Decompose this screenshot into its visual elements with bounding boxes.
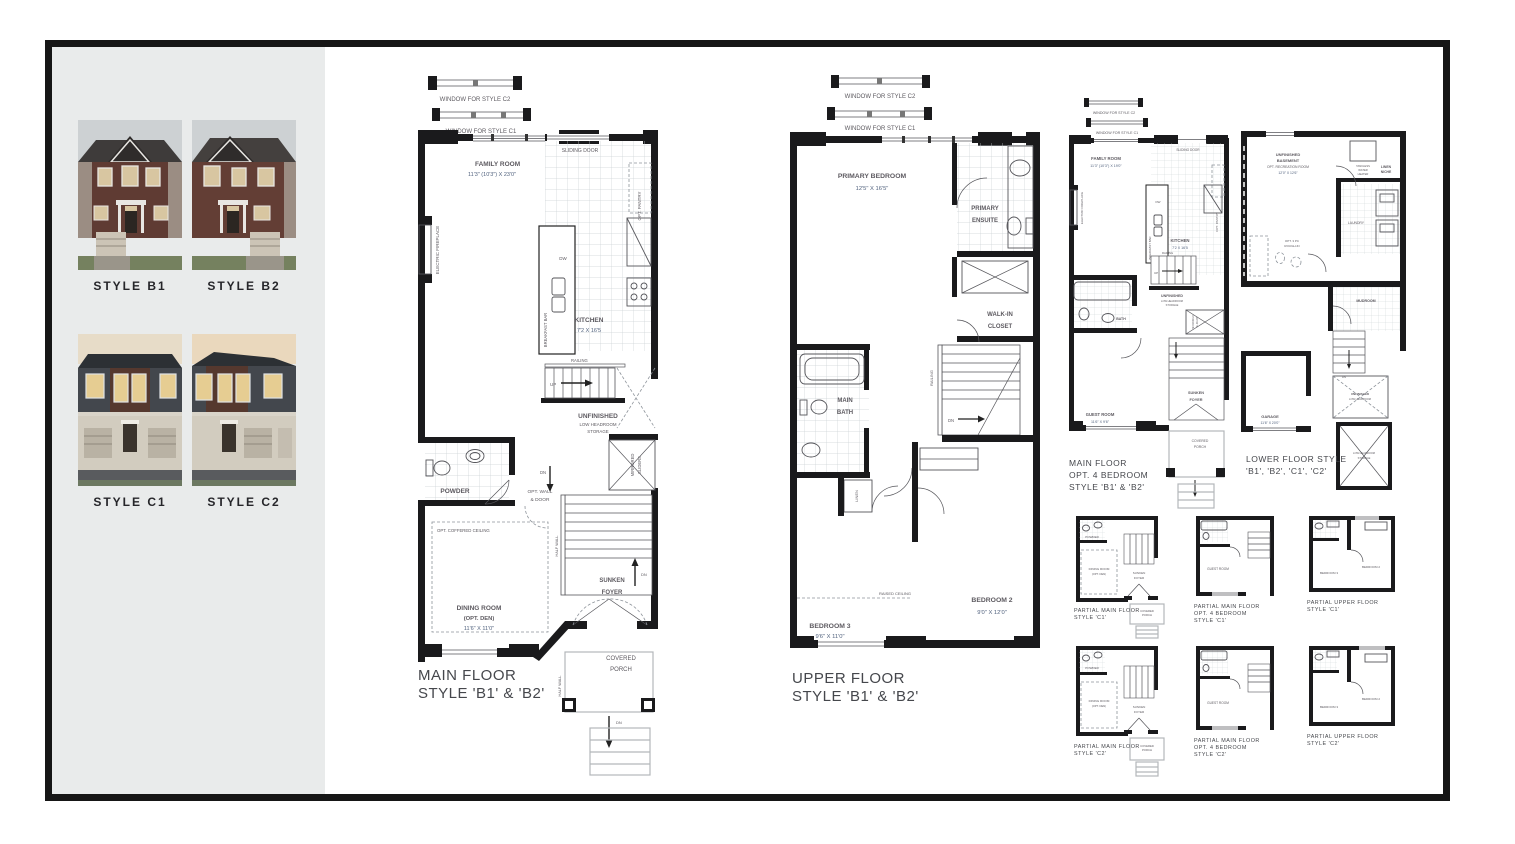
style-label-c2: STYLE C2 [192,495,296,509]
p1-label-optden: (OPT. DEN) [1092,572,1106,576]
label-dn-1: DN [540,470,546,475]
label-kitchen-dim: 7'2 X 16'5 [577,328,601,334]
p5-title-line3: STYLE 'C2' [1194,752,1227,758]
opt4-label-mirrored: MIRRORED [1192,315,1195,329]
p1-title-line2: STYLE 'C1' [1074,615,1107,621]
label-dining-dim: 11'6" X 11'0" [464,626,494,632]
p6-label-bedro3: BEDROOM 3 [1320,705,1338,709]
label-sliding-door: SLIDING DOOR [562,148,599,154]
label-main: MAIN [837,398,852,404]
upper-floor-title-line2: STYLE 'B1' & 'B2' [792,688,919,705]
opt4-label-guest-room-dim: 11'6" X 9'6" [1091,420,1110,424]
style-label-c1: STYLE C1 [78,495,182,509]
style-card-b1: STYLE B1 [78,120,182,293]
lower-label-roughin: ROUGH-IN [1284,244,1299,248]
label-storage: STORAGE [587,429,608,434]
label-foyer: FOYER [602,590,623,596]
p5-label-guest: GUEST ROOM [1207,701,1229,705]
opt4-label-unfinished: UNFINISHED [1161,294,1183,298]
p4-label-powder: POWDER [1085,666,1099,670]
opt4-window-c2-label: WINDOW FOR STYLE C2 [1093,111,1135,115]
p6-title-line1: PARTIAL UPPER FLOOR [1307,734,1378,740]
covered-porch-area: COVERED PORCH HALF WALL DN [558,652,655,775]
label-raised-ceiling: RAISED CEILING [879,591,911,596]
main-bath-area: MAIN BATH [790,344,870,478]
opt4-label-railing: RAILING [1162,251,1173,255]
opt4-porch: COVERED PORCH [1166,431,1225,508]
p2-title-line2: OPT. 4 BEDROOM [1194,611,1247,617]
lower-label-tankless3: HEATER [1358,172,1369,176]
bedroom3-area: RAISED CEILING BEDROOM 3 9'6" X 11'0" [797,591,912,640]
lower-label-basement: BASEMENT [1277,158,1300,163]
primary-bedroom-area: PRIMARY BEDROOM 12'5" X 16'5" [838,173,907,192]
main-floor-title: MAIN FLOOR STYLE 'B1' & 'B2' [418,667,545,702]
label-bedroom3: BEDROOM 3 [809,623,850,630]
window-detail-c2: WINDOW FOR STYLE C2 [428,76,522,103]
partial-upper-floor-c1: BEDROOM 3 BEDROOM 2 PARTIAL UPPER FLOOR … [1305,512,1405,627]
opt4-main-floor-plan: WINDOW FOR STYLE C2 WINDOW FOR STYLE C1 [1066,90,1238,510]
opt4-title: MAIN FLOOR OPT. 4 BEDROOM STYLE 'B1' & '… [1069,458,1148,492]
p3-label-bedro2: BEDROOM 2 [1362,565,1380,569]
lower-label-laundry: LAUNDRY [1348,221,1365,225]
opt4-label-storage: STORAGE [1166,303,1179,307]
mudroom-area: MUDROOM DN [1333,287,1400,379]
garage-area: GARAGE 11'6" X 20'0" [1241,351,1311,432]
label-primary-bedroom-dim: 12'5" X 16'5" [856,186,889,192]
main-floor-title-line1: MAIN FLOOR [418,667,516,684]
label-railing: RAILING [571,358,588,363]
style-card-c1: STYLE C1 [78,334,182,509]
label-dn-3: DN [616,720,622,725]
p1-label-porch: PORCH [1142,613,1152,617]
window-c1-label-upper: WINDOW FOR STYLE C1 [845,126,916,132]
label-upper-railing: RAILING [929,370,934,386]
style-label-b1: STYLE B1 [78,279,182,293]
lower-title: LOWER FLOOR STYLE 'B1', 'B2', 'C1', 'C2' [1246,454,1347,476]
partial-main-opt4-c2: GUEST ROOM PARTIAL MAIN FLOOR OPT. 4 BED… [1192,642,1292,777]
label-ensuite: ENSUITE [972,218,998,224]
window-c2-label-upper: WINDOW FOR STYLE C2 [845,94,916,100]
p1-label-dining: DINING ROOM [1089,567,1110,571]
label-kitchen: KITCHEN [575,317,604,324]
p5-title-line1: PARTIAL MAIN FLOOR [1194,738,1260,744]
p1-label-powder: POWDER [1085,535,1099,539]
mirrored-sliders-closet: MIRRORED SLIDERS [609,440,655,490]
label-sunken: SUNKEN [599,578,624,584]
upper-floor-plan: WINDOW FOR STYLE C2 WINDOW FOR STYLE C1 [782,68,1062,768]
opt4-window-details: WINDOW FOR STYLE C2 WINDOW FOR STYLE C1 [1084,98,1148,135]
opt4-label-family-room: FAMILY ROOM [1091,156,1121,161]
p4-title-line2: STYLE 'C2' [1074,751,1107,757]
opt4-label-covered: COVERED [1192,439,1209,443]
label-primary: PRIMARY [971,206,998,212]
opt4-title-line2: OPT. 4 BEDROOM [1069,470,1148,480]
powder-room: POWDER [425,443,509,504]
p5-title-line2: OPT. 4 BEDROOM [1194,745,1247,751]
lower-label-tankless1: TANKLESS [1356,164,1370,168]
opt4-label-foyer: FOYER [1189,398,1202,402]
lower-title-line1: LOWER FLOOR STYLE [1246,454,1347,464]
label-breakfast-bar: BREAKFAST BAR [543,313,548,347]
partial-main-floor-c1: POWDER DINING ROOM (OPT. DEN) SUNKEN FOY… [1072,512,1182,640]
opt4-label-family-room-dim: 11'3" (10'3") X 19'0" [1090,164,1122,168]
style-card-c2: STYLE C2 [192,334,296,509]
label-opt-wall: OPT. WALL [528,489,553,495]
opt4-label-guest-room: GUEST ROOM [1086,412,1115,417]
style-card-b2: STYLE B2 [192,120,296,293]
label-closet: CLOSET [988,324,1013,330]
label-mirrored: MIRRORED [630,454,635,477]
opt4-label-sliders: SLIDERS [1196,316,1199,327]
lower-label-garage-dim: 11'6" X 20'0" [1261,421,1281,425]
house-photo-c1 [78,334,182,486]
opt4-label-sunken: SUNKEN [1188,391,1204,395]
label-powder: POWDER [440,488,470,495]
label-sliders: SLIDERS [637,456,642,474]
lower-label-rec-dim: 12'0" X 12'6" [1278,171,1298,175]
kitchen-area: SLIDING DOOR DW BREAKFAST BAR OPT. PANTR… [539,134,651,354]
stairs-up: RAILING UP UNFINISHED LOW HEADROOM STORA… [545,358,655,434]
p2-title-line1: PARTIAL MAIN FLOOR [1194,604,1260,610]
lower-label-lowhead2: LOW HEADROOM [1349,397,1371,401]
opt4-label-kitchen-dim: 7'2 X 16'5 [1172,246,1188,250]
opt4-bath: BATH [1069,275,1137,333]
lower-label-opt3pc: OPT. 3 PC [1285,239,1300,243]
rec-room-area: UNFINISHED BASEMENT OPT. RECREATION ROOM… [1267,152,1309,175]
p2-title-line3: STYLE 'C1' [1194,618,1227,624]
opt4-guest-room: GUEST ROOM 11'6" X 9'6" [1086,338,1141,424]
label-half-wall-2: HALF WALL [558,676,562,697]
p6-title-line2: STYLE 'C2' [1307,741,1340,747]
opt4-label-up: UP [1154,271,1158,275]
lower-label-niche: NICHE [1381,170,1392,174]
upper-floor-title: UPPER FLOOR STYLE 'B1' & 'B2' [792,670,919,705]
upper-floor-title-line1: UPPER FLOOR [792,670,905,687]
label-low-headroom: LOW HEADROOM [579,422,616,427]
label-unfinished: UNFINISHED [578,413,618,420]
label-upper-dn: DN [948,418,954,423]
p4-label-dining: DINING ROOM [1089,699,1110,703]
partial-upper-floor-c2: BEDROOM 3 BEDROOM 2 PARTIAL UPPER FLOOR … [1305,642,1405,762]
upper-stairs: RAILING DN [929,345,1040,442]
roughin-area: OPT. 3 PC ROUGH-IN [1250,236,1326,276]
label-dining-room: DINING ROOM [457,605,502,612]
lower-label-opt-rec: OPT. RECREATION ROOM [1267,165,1309,169]
label-walkin: WALK-IN [987,312,1013,318]
label-linen: LINEN [854,490,859,502]
house-photo-b2 [192,120,296,270]
label-bath: BATH [837,410,853,416]
opt4-label-pantry: OPT. PANTRY [1215,212,1219,231]
opt4-label-dw: DW [1156,200,1161,204]
lower-label-storage3: STORAGE [1358,456,1371,460]
p6-label-bedro2: BEDROOM 2 [1362,697,1380,701]
p4-title-line1: PARTIAL MAIN FLOOR [1074,744,1140,750]
lower-label-mudroom: MUDROOM [1356,299,1375,303]
p4-label-optden: (OPT. DEN) [1092,704,1106,708]
house-photo-c2 [192,334,296,486]
p1-label-sunken: SUNKEN [1133,571,1146,575]
label-amp-door: & DOOR [531,497,550,503]
label-bedroom2-dim: 9'0" X 12'0" [977,610,1007,616]
style-label-b2: STYLE B2 [192,279,296,293]
label-primary-bedroom: PRIMARY BEDROOM [838,173,907,180]
opt4-title-line3: STYLE 'B1' & 'B2' [1069,482,1144,492]
p1-label-foyer: FOYER [1134,576,1145,580]
opt4-label-fireplace: ELECTRIC FIREPLACE [1080,192,1084,224]
opt4-title-line1: MAIN FLOOR [1069,458,1127,468]
opt4-label-kitchen: KITCHEN [1170,238,1189,243]
opt4-foyer: SUNKEN FOYER [1169,338,1224,420]
label-dn-2: DN [641,572,647,577]
p2-label-guest: GUEST ROOM [1207,567,1229,571]
opt4-label-porch: PORCH [1194,445,1207,449]
label-opt-coffered: OPT. COFFERED CEILING [437,528,490,533]
lower-label-lowhead3: LOW HEADROOM [1353,451,1375,455]
opt4-label-bath: BATH [1116,317,1126,321]
opt4-window-c1-label: WINDOW FOR STYLE C1 [1096,131,1138,135]
walkin-closet-area: WALK-IN CLOSET [952,257,1040,342]
lower-floor-plan: UNFINISHED BASEMENT OPT. RECREATION ROOM… [1238,126,1418,506]
label-porch: PORCH [610,667,632,673]
label-half-wall-1: HALF WALL [555,536,559,557]
p1-title-line1: PARTIAL MAIN FLOOR [1074,608,1140,614]
lower-label-linen: LINEN [1381,165,1392,169]
opt4-kitchen-family: SLIDING DOOR FAMILY ROOM 11'3" (10'3") X… [1069,138,1224,275]
p4-label-foyer: FOYER [1134,710,1145,714]
primary-ensuite-area: PRIMARY ENSUITE [952,143,1040,257]
floorplan-brochure-page: STYLE B1 STYLE B2 [0,0,1515,844]
dining-room-area: OPT. COFFERED CEILING DINING ROOM (OPT. … [432,522,548,632]
label-bedroom3-dim: 9'6" X 11'0" [815,634,844,640]
label-family-room-dim: 11'3" (10'3") X 23'0" [468,172,516,178]
label-family-room: FAMILY ROOM [475,161,520,168]
main-floor-title-line2: STYLE 'B1' & 'B2' [418,685,545,702]
storage-boxes: UNFINISHED LOW HEADROOM LOW HEADROOM STO… [1333,376,1392,490]
bedroom2-area: BEDROOM 2 9'0" X 12'0" [912,442,1013,616]
p4-label-porch: PORCH [1142,748,1152,752]
label-dining-opt: (OPT. DEN) [464,616,495,622]
label-covered: COVERED [606,656,636,662]
p3-label-bedro3: BEDROOM 3 [1320,571,1338,575]
opt4-label-sliding-door: SLIDING DOOR [1176,148,1200,152]
label-bedroom2: BEDROOM 2 [971,597,1012,604]
main-floor-plan: WINDOW FOR STYLE C2 WINDOW FOR STYLE C1 [413,68,688,783]
p3-title-line1: PARTIAL UPPER FLOOR [1307,600,1378,606]
laundry-area: LAUNDRY [1341,184,1400,254]
family-room-area: FAMILY ROOM 11'3" (10'3") X 23'0" ELECTR… [418,161,520,283]
partial-main-floor-c2: POWDER DINING ROOM (OPT. DEN) SUNKEN FOY… [1072,642,1182,782]
lower-title-line2: 'B1', 'B2', 'C1', 'C2' [1246,466,1327,476]
partial-main-opt4-c1: GUEST ROOM PARTIAL MAIN FLOOR OPT. 4 BED… [1192,512,1292,640]
lower-label-tankless2: WATER [1358,168,1367,172]
window-c2-label: WINDOW FOR STYLE C2 [440,97,511,103]
label-electric-fireplace: ELECTRIC FIREPLACE [435,226,440,275]
window-detail-c2-upper: WINDOW FOR STYLE C2 [831,75,930,100]
opt4-label-low-headroom: LOW HEADROOM [1161,299,1183,303]
p4-label-sunken: SUNKEN [1133,705,1146,709]
label-opt-pantry: OPT. PANTRY [637,191,642,220]
window-detail-c1-upper: WINDOW FOR STYLE C1 [827,107,932,132]
lower-label-unf2: UNFINISHED [1351,392,1370,396]
label-up: UP [550,382,556,387]
label-dw: DW [559,256,567,261]
lower-label-unfinished: UNFINISHED [1276,152,1301,157]
lower-label-garage: GARAGE [1261,414,1279,419]
p3-title-line2: STYLE 'C1' [1307,607,1340,613]
house-photo-b1 [78,120,182,270]
